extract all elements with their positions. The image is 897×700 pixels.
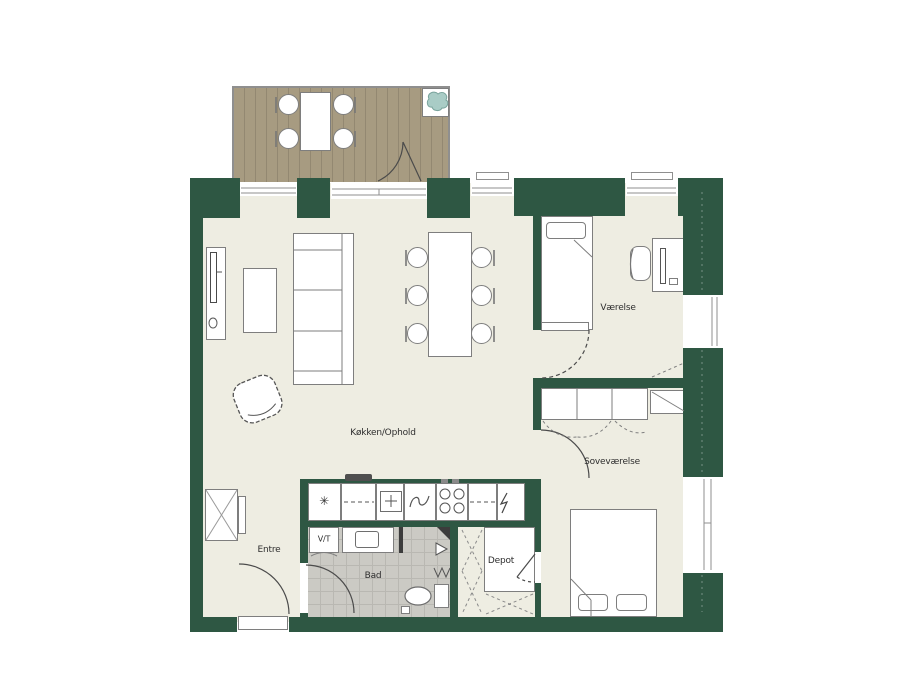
wall-segment xyxy=(535,583,541,618)
dining-chair xyxy=(407,247,428,268)
pillow xyxy=(616,594,647,611)
wall-segment xyxy=(297,178,330,218)
wall-segment xyxy=(289,617,723,632)
counter-cell xyxy=(341,483,376,521)
balcony-glass-door xyxy=(331,183,427,199)
wall-segment xyxy=(300,479,308,527)
room-label-washer: V/T xyxy=(318,535,330,544)
plant-box xyxy=(422,88,449,117)
room-label-room: Værelse xyxy=(600,303,635,313)
wall-segment xyxy=(300,613,308,621)
oven-cell xyxy=(497,483,525,521)
entry-wardrobe xyxy=(205,489,238,541)
stove xyxy=(436,483,468,521)
window-sill xyxy=(631,172,673,180)
floor-plan: Køkken/Ophold Værelse Soveværelse Entre … xyxy=(0,0,897,700)
room-label-entry: Entre xyxy=(258,545,281,555)
coffee-table xyxy=(243,268,277,333)
entrance-door-leaf xyxy=(238,616,288,630)
tv-screen xyxy=(210,252,217,303)
wall-segment xyxy=(678,178,723,216)
wardrobe xyxy=(541,388,648,420)
floor-item xyxy=(401,606,410,614)
wall-segment xyxy=(533,388,541,430)
room-label-storage: Depot xyxy=(488,556,514,566)
dining-chair xyxy=(407,285,428,306)
wall-segment xyxy=(190,178,240,218)
keyboard xyxy=(669,278,678,285)
window xyxy=(240,183,297,196)
counter-cell xyxy=(468,483,497,521)
room-label-bedroom: Soveværelse xyxy=(584,457,640,467)
balcony-table xyxy=(300,92,331,151)
dining-chair xyxy=(471,247,492,268)
storage-door-opening xyxy=(535,552,541,583)
range-hood xyxy=(345,474,372,481)
sofa xyxy=(293,233,354,385)
stove-control xyxy=(441,479,448,483)
room-label-bathroom: Bad xyxy=(365,571,382,581)
washbasin xyxy=(355,531,379,548)
wall-segment xyxy=(190,617,237,632)
dishwasher xyxy=(404,483,436,521)
wall-segment xyxy=(190,178,203,632)
corner-cabinet xyxy=(650,390,686,414)
dining-chair xyxy=(471,323,492,344)
entry-wardrobe-door xyxy=(238,496,246,534)
window xyxy=(683,295,723,348)
wall-segment xyxy=(533,378,688,388)
toilet-tank xyxy=(434,584,449,608)
desk-chair xyxy=(630,246,651,281)
pillow xyxy=(546,222,586,239)
door-leaf xyxy=(541,322,589,331)
dining-table xyxy=(428,232,472,357)
wall-segment xyxy=(300,527,308,563)
freezer-icon: ✳ xyxy=(319,494,329,508)
pillow xyxy=(578,594,608,611)
desk xyxy=(652,238,684,292)
balcony-chair xyxy=(278,128,299,149)
window-sill xyxy=(476,172,509,180)
wall-segment xyxy=(533,216,541,330)
balcony-chair xyxy=(333,128,354,149)
balcony-chair xyxy=(333,94,354,115)
room-label-kitchen-living: Køkken/Ophold xyxy=(350,428,415,438)
wall-segment xyxy=(514,178,625,216)
sink-basin xyxy=(380,491,402,512)
monitor xyxy=(660,248,666,284)
dining-chair xyxy=(471,285,492,306)
balcony-chair xyxy=(278,94,299,115)
wall-segment xyxy=(450,527,458,618)
dining-chair xyxy=(407,323,428,344)
window xyxy=(683,477,723,573)
wall-segment xyxy=(525,479,541,527)
stove-control xyxy=(452,479,459,483)
wall-segment xyxy=(427,178,470,218)
bathroom-door-opening xyxy=(300,563,308,613)
window xyxy=(471,183,514,196)
wall-segment xyxy=(535,527,541,552)
window xyxy=(626,183,678,196)
shower-partition xyxy=(399,527,403,553)
